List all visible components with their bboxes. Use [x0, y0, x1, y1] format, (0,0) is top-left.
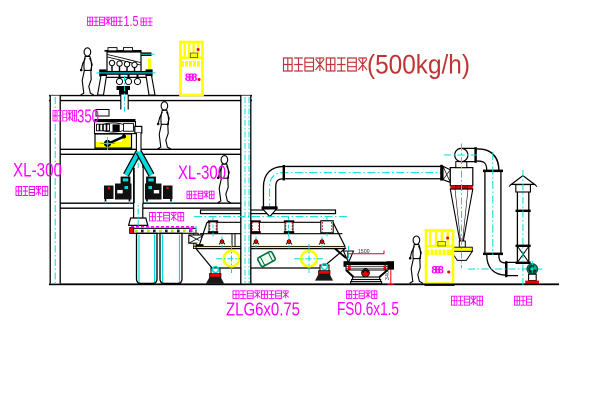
svg-text:888: 888 — [185, 72, 198, 84]
svg-text:FS0.6x1.5: FS0.6x1.5 — [337, 299, 399, 319]
svg-text:1.5: 1.5 — [124, 13, 139, 30]
svg-text:XL-300: XL-300 — [13, 161, 62, 182]
svg-text:ZLG6x0.75: ZLG6x0.75 — [226, 300, 300, 320]
svg-text:XL-300: XL-300 — [178, 163, 226, 184]
svg-text:350: 350 — [77, 107, 99, 127]
svg-text:(500kg/h): (500kg/h) — [367, 50, 470, 80]
svg-text:888: 888 — [431, 265, 444, 277]
svg-text:1500: 1500 — [358, 249, 370, 255]
